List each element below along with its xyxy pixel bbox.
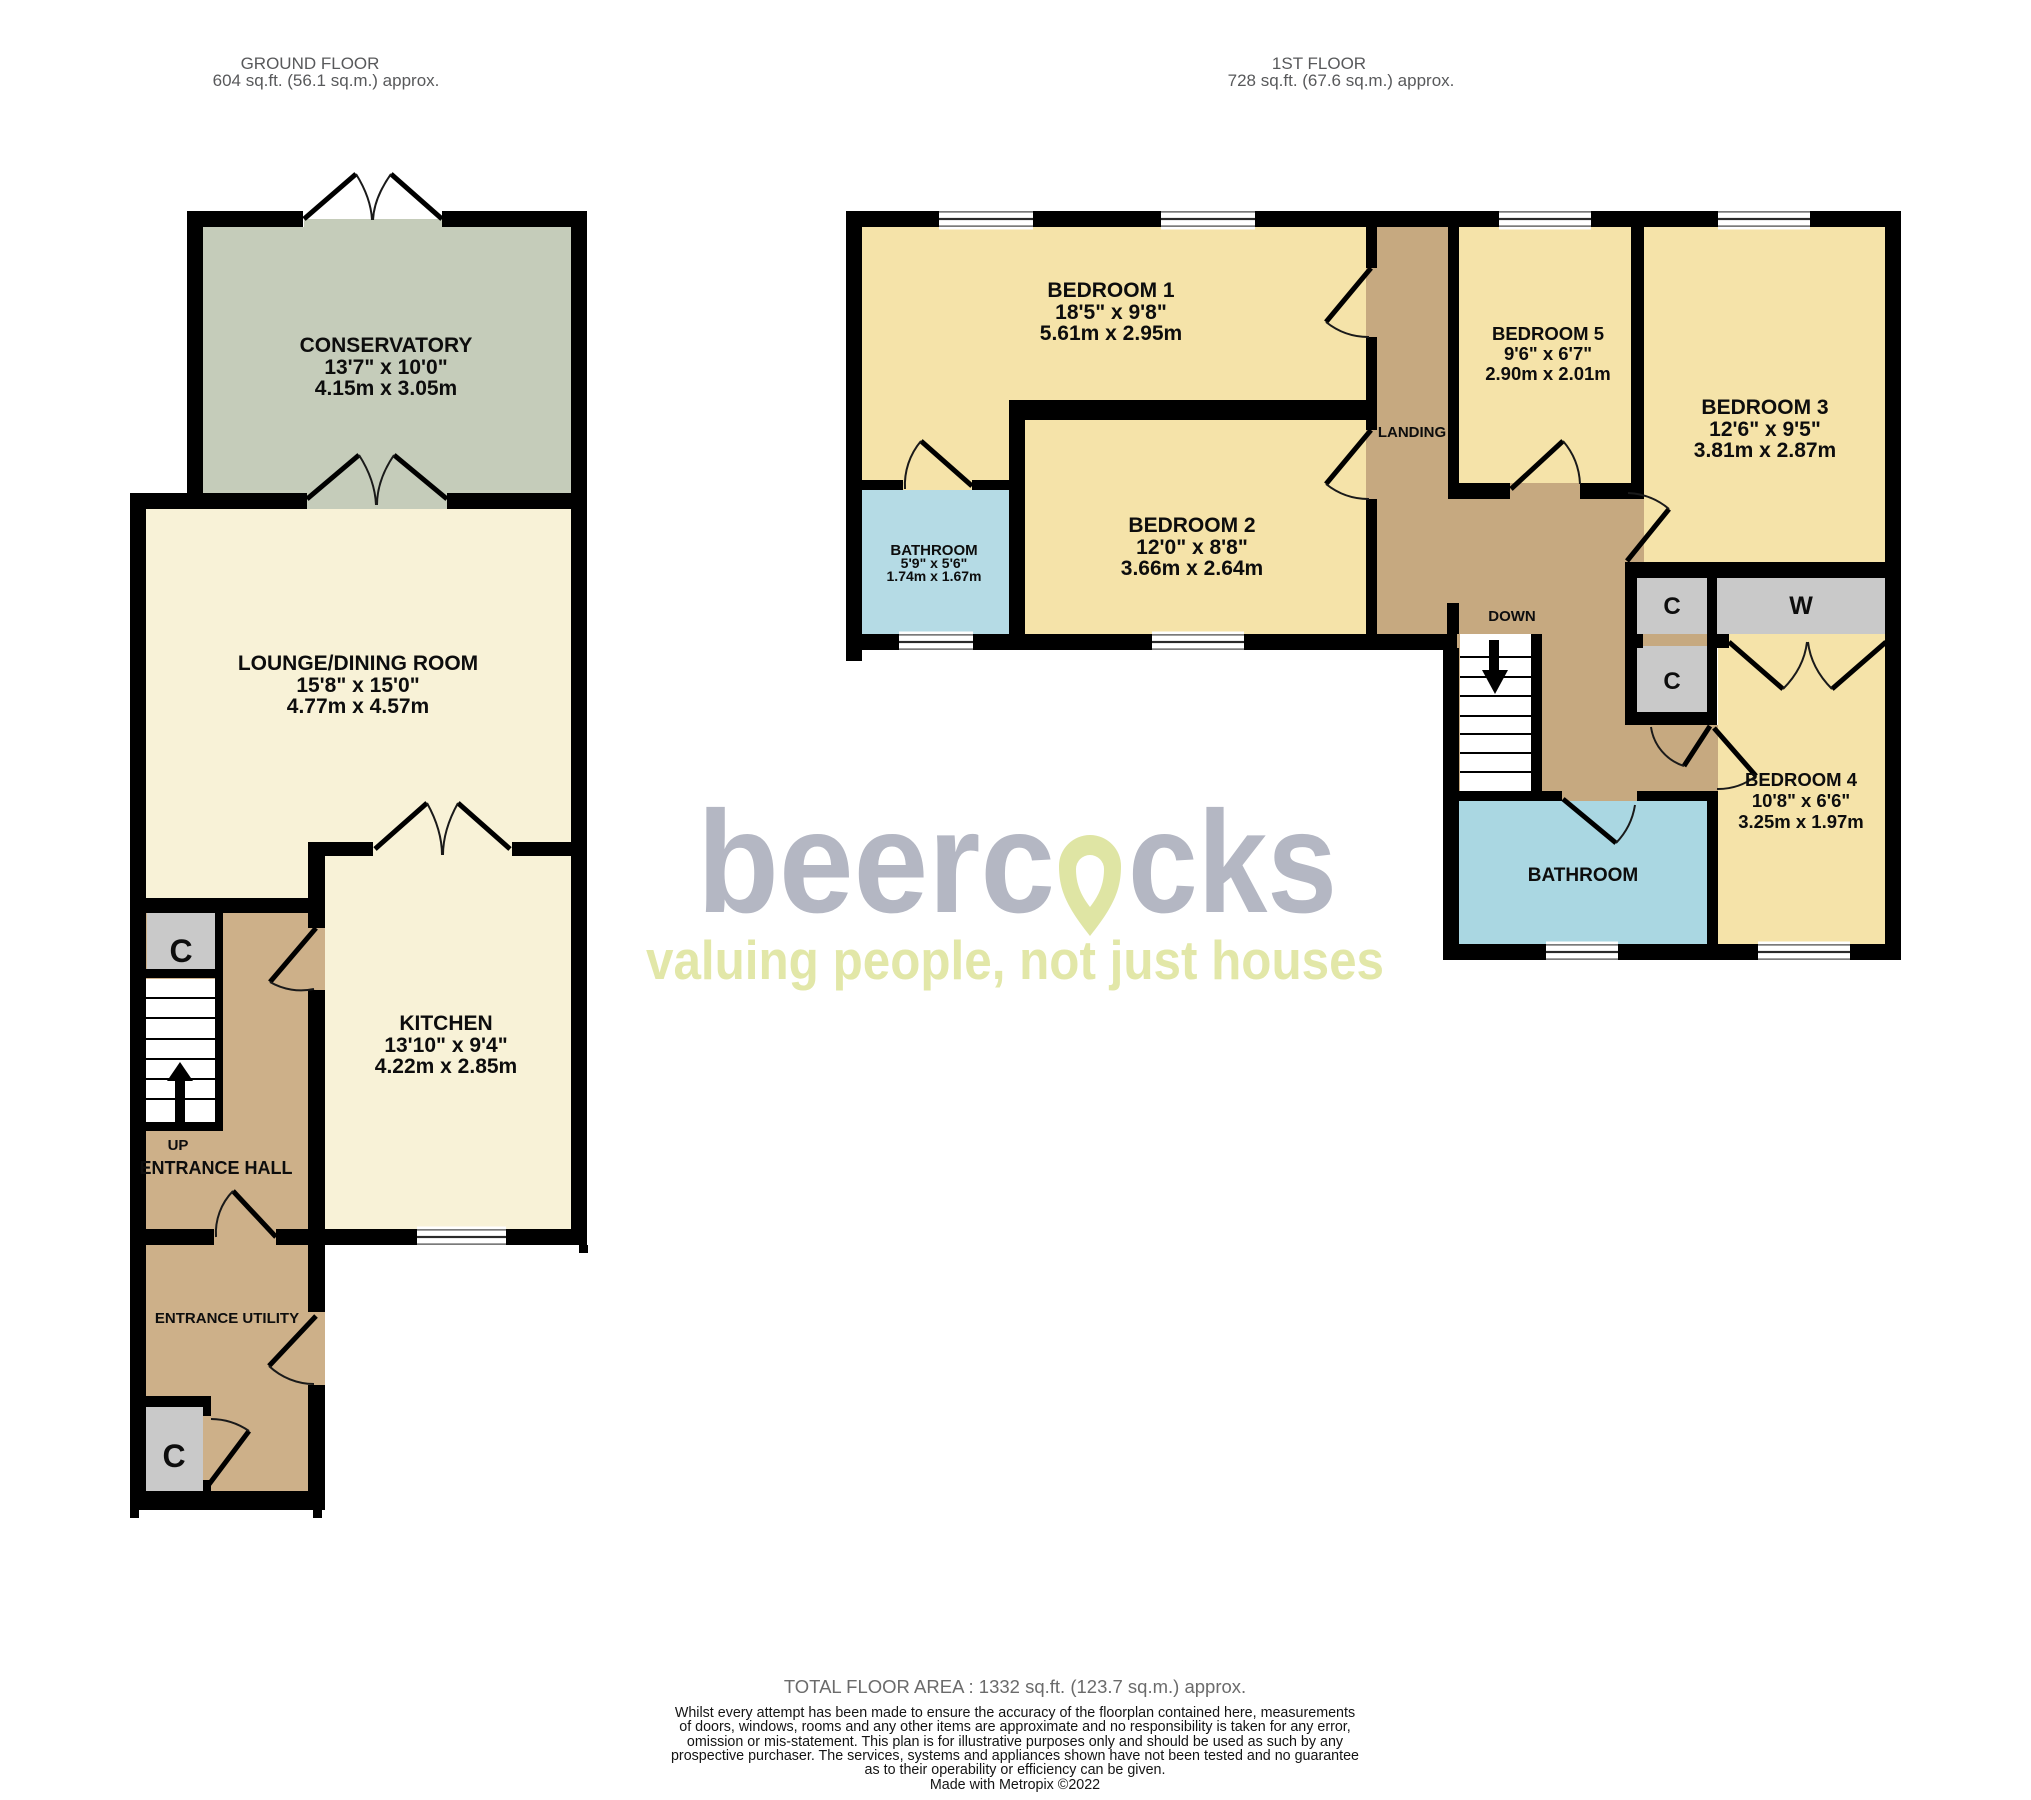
svg-text:BEDROOM 1: BEDROOM 1: [1047, 279, 1175, 302]
svg-text:C: C: [162, 1438, 185, 1474]
svg-text:ENTRANCE UTILITY: ENTRANCE UTILITY: [155, 1310, 299, 1327]
svg-text:valuing people, not just house: valuing people, not just houses: [646, 929, 1384, 991]
svg-text:W: W: [1789, 592, 1813, 620]
svg-text:BEDROOM 5: BEDROOM 5: [1492, 323, 1604, 344]
svg-text:Made with Metropix ©2022: Made with Metropix ©2022: [930, 1777, 1100, 1793]
svg-text:of doors, windows, rooms and a: of doors, windows, rooms and any other i…: [679, 1719, 1351, 1735]
svg-text:2.90m x 2.01m: 2.90m x 2.01m: [1485, 363, 1610, 384]
svg-text:4.77m x 4.57m: 4.77m x 4.57m: [287, 695, 429, 718]
svg-text:13'7" x 10'0": 13'7" x 10'0": [324, 356, 447, 379]
svg-text:ENTRANCE HALL: ENTRANCE HALL: [140, 1158, 293, 1178]
svg-text:15'8" x 15'0": 15'8" x 15'0": [296, 674, 419, 697]
svg-text:BEDROOM 3: BEDROOM 3: [1701, 396, 1828, 419]
svg-text:4.22m x 2.85m: 4.22m x 2.85m: [375, 1055, 517, 1078]
svg-text:728 sq.ft. (67.6 sq.m.) approx: 728 sq.ft. (67.6 sq.m.) approx.: [1228, 71, 1455, 90]
svg-text:4.15m x 3.05m: 4.15m x 3.05m: [315, 377, 457, 400]
svg-text:beerc: beerc: [697, 781, 1055, 943]
svg-text:604 sq.ft. (56.1 sq.m.) approx: 604 sq.ft. (56.1 sq.m.) approx.: [213, 71, 440, 90]
svg-text:BATHROOM: BATHROOM: [1528, 865, 1638, 886]
svg-text:12'6" x 9'5": 12'6" x 9'5": [1709, 418, 1821, 441]
svg-text:CONSERVATORY: CONSERVATORY: [300, 334, 473, 357]
svg-text:10'8" x 6'6": 10'8" x 6'6": [1752, 790, 1850, 811]
svg-text:1.74m x 1.67m: 1.74m x 1.67m: [887, 568, 982, 584]
svg-text:18'5" x 9'8": 18'5" x 9'8": [1055, 301, 1167, 324]
svg-text:BEDROOM 2: BEDROOM 2: [1128, 514, 1255, 537]
svg-text:13'10" x 9'4": 13'10" x 9'4": [384, 1034, 507, 1057]
svg-text:LOUNGE/DINING ROOM: LOUNGE/DINING ROOM: [238, 652, 478, 675]
svg-text:TOTAL FLOOR AREA : 1332 sq.ft.: TOTAL FLOOR AREA : 1332 sq.ft. (123.7 sq…: [784, 1676, 1246, 1697]
svg-text:KITCHEN: KITCHEN: [399, 1012, 492, 1035]
svg-text:DOWN: DOWN: [1488, 608, 1536, 625]
svg-text:LANDING: LANDING: [1378, 424, 1446, 441]
svg-text:UP: UP: [168, 1137, 189, 1154]
svg-text:C: C: [169, 933, 192, 969]
svg-text:as to their operability or eff: as to their operability or efficiency ca…: [865, 1762, 1166, 1778]
svg-text:cks: cks: [1128, 781, 1337, 943]
svg-text:3.81m x 2.87m: 3.81m x 2.87m: [1694, 439, 1836, 462]
svg-text:BEDROOM 4: BEDROOM 4: [1745, 769, 1858, 790]
svg-text:C: C: [1663, 668, 1680, 695]
svg-text:C: C: [1663, 593, 1680, 620]
svg-text:5.61m x 2.95m: 5.61m x 2.95m: [1040, 322, 1182, 345]
svg-text:12'0" x 8'8": 12'0" x 8'8": [1136, 536, 1248, 559]
svg-text:9'6" x 6'7": 9'6" x 6'7": [1504, 343, 1592, 364]
svg-text:3.25m x 1.97m: 3.25m x 1.97m: [1738, 811, 1863, 832]
svg-text:3.66m x 2.64m: 3.66m x 2.64m: [1121, 557, 1263, 580]
